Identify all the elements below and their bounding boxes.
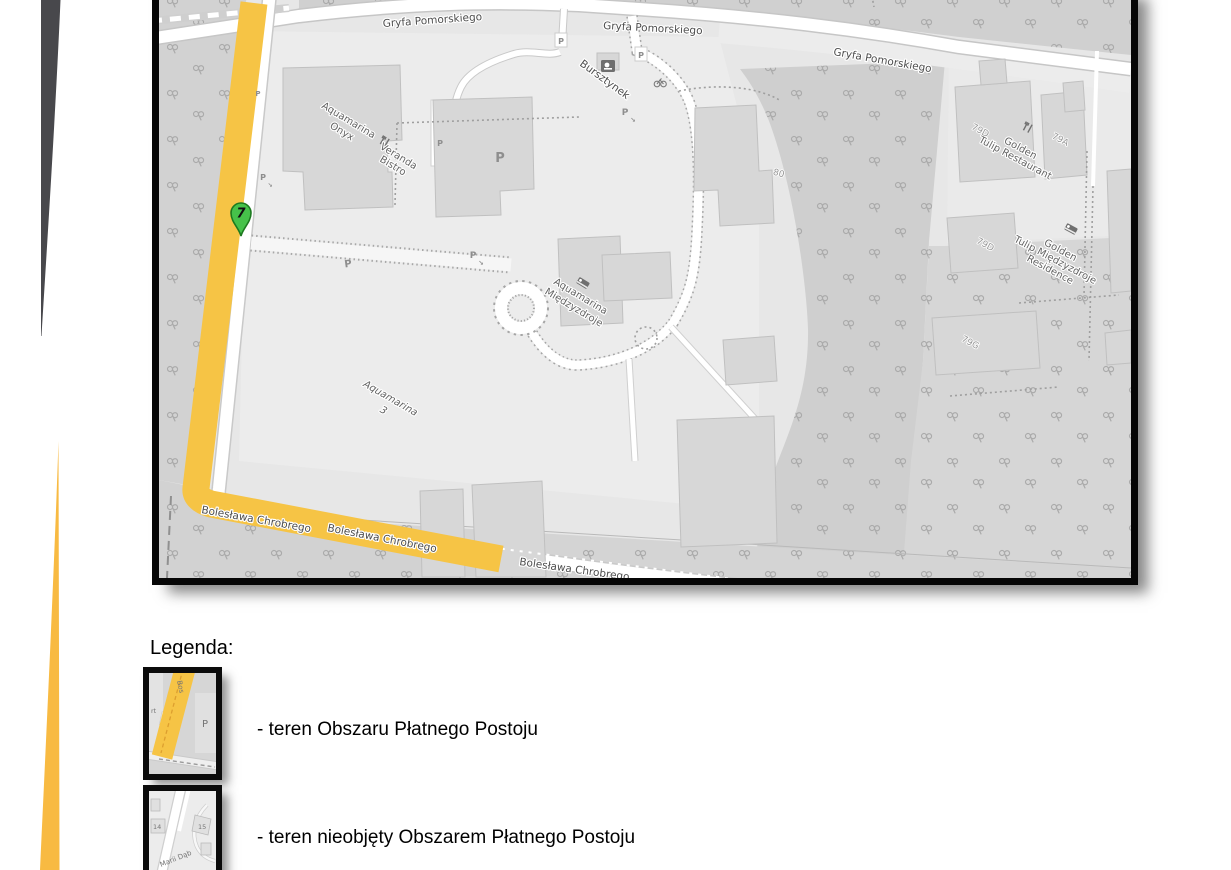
parking-arrow-icon: ↘ bbox=[630, 116, 635, 124]
document-page: P P P P ↘ P P P P ↘ P ↘ bbox=[0, 0, 1231, 870]
parking-icon: P bbox=[622, 108, 629, 118]
parking-icon: P bbox=[558, 37, 564, 46]
legend-thumb-paid: Bos rt P bbox=[143, 667, 222, 780]
parking-icon: P bbox=[638, 51, 644, 60]
osm-map: P P P P ↘ P P P P ↘ P ↘ bbox=[159, 0, 1131, 578]
map-frame: P P P P ↘ P P P P ↘ P ↘ bbox=[152, 0, 1138, 585]
parking-icon: P bbox=[255, 90, 260, 98]
parking-icon: P bbox=[260, 173, 266, 182]
yellow-wedge bbox=[40, 441, 60, 870]
dark-wedge bbox=[41, 0, 61, 336]
parking-icon: P bbox=[495, 151, 505, 166]
legend-thumb-unpaid: 14 15 Marii Dąb bbox=[143, 785, 222, 870]
left-decoration bbox=[0, 0, 70, 870]
parking-icon: P bbox=[344, 259, 353, 271]
parking-icon: P bbox=[202, 719, 208, 730]
legend-item-paid-label: - teren Obszaru Płatnego Postoju bbox=[257, 719, 538, 741]
legend-thumb-building-14: 14 bbox=[153, 823, 161, 831]
legend-title: Legenda: bbox=[150, 637, 233, 660]
legend-thumb-fragment: rt bbox=[151, 707, 157, 715]
parking-arrow-icon: ↘ bbox=[478, 259, 483, 267]
legend-thumb-building-15: 15 bbox=[198, 823, 206, 831]
parking-arrow-icon: ↘ bbox=[267, 182, 272, 189]
legend-item-unpaid-label: - teren nieobjęty Obszarem Płatnego Post… bbox=[257, 827, 635, 849]
parking-icon: P bbox=[470, 251, 477, 261]
marker-number: 7 bbox=[236, 207, 246, 222]
parking-icon: P bbox=[437, 139, 443, 148]
